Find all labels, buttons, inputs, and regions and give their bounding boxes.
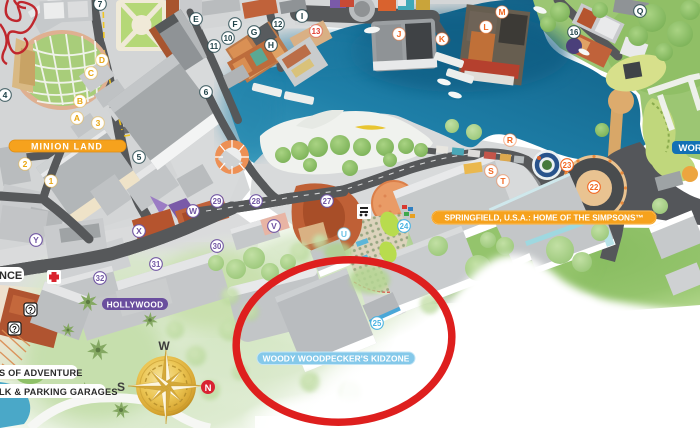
svg-text:M: M	[498, 7, 505, 17]
svg-text:K: K	[439, 34, 446, 44]
svg-text:11: 11	[210, 42, 219, 51]
svg-text:S OF ADVENTURE: S OF ADVENTURE	[0, 368, 83, 378]
svg-text:WORL: WORL	[678, 143, 700, 154]
svg-text:22: 22	[590, 183, 599, 192]
svg-text:27: 27	[323, 197, 332, 206]
svg-text:4: 4	[3, 90, 8, 100]
svg-text:X: X	[136, 226, 142, 236]
svg-text:Q: Q	[637, 6, 644, 16]
svg-text:I: I	[301, 11, 303, 21]
svg-text:25: 25	[373, 319, 382, 328]
svg-text:24: 24	[400, 222, 409, 231]
svg-text:W: W	[189, 206, 198, 216]
svg-text:SPRINGFIELD, U.S.A.: HOME OF T: SPRINGFIELD, U.S.A.: HOME OF THE SIMPSON…	[444, 214, 643, 223]
svg-text:1: 1	[49, 176, 54, 186]
svg-text:?: ?	[12, 325, 17, 334]
svg-text:D: D	[99, 55, 105, 65]
svg-text:MINION LAND: MINION LAND	[31, 142, 103, 152]
svg-text:F: F	[232, 19, 237, 29]
svg-text:S: S	[117, 380, 125, 394]
svg-text:23: 23	[563, 161, 572, 170]
svg-text:?: ?	[28, 306, 33, 315]
svg-text:31: 31	[152, 260, 161, 269]
svg-text:WOODY WOODPECKER'S KIDZONE: WOODY WOODPECKER'S KIDZONE	[263, 354, 410, 364]
svg-text:Y: Y	[33, 235, 39, 245]
svg-text:16: 16	[570, 28, 579, 37]
svg-text:A: A	[74, 113, 80, 123]
svg-text:30: 30	[213, 242, 222, 251]
svg-text:B: B	[77, 96, 83, 106]
svg-text:J: J	[397, 29, 402, 39]
svg-text:G: G	[251, 27, 258, 37]
svg-text:13: 13	[312, 27, 321, 36]
svg-text:V: V	[271, 221, 277, 231]
svg-text:L: L	[483, 22, 488, 32]
svg-text:2: 2	[23, 159, 28, 169]
svg-text:32: 32	[96, 274, 105, 283]
svg-text:HOLLYWOOD: HOLLYWOOD	[107, 300, 164, 310]
svg-text:3: 3	[96, 118, 101, 128]
svg-text:U: U	[341, 229, 347, 239]
svg-text:5: 5	[137, 152, 142, 162]
svg-text:NCE: NCE	[0, 270, 22, 282]
svg-text:10: 10	[224, 34, 233, 43]
svg-text:N: N	[205, 383, 212, 394]
svg-text:7: 7	[98, 0, 103, 9]
svg-text:T: T	[500, 176, 506, 186]
svg-text:C: C	[88, 68, 94, 78]
svg-text:R: R	[507, 135, 513, 145]
svg-text:28: 28	[252, 197, 261, 206]
svg-text:6: 6	[204, 87, 209, 97]
svg-text:LK & PARKING GARAGES: LK & PARKING GARAGES	[0, 387, 118, 397]
svg-text:W: W	[158, 339, 170, 353]
svg-text:E: E	[193, 14, 199, 24]
svg-text:H: H	[268, 40, 274, 50]
svg-text:12: 12	[274, 20, 283, 29]
svg-text:S: S	[488, 166, 494, 176]
svg-text:29: 29	[213, 197, 222, 206]
